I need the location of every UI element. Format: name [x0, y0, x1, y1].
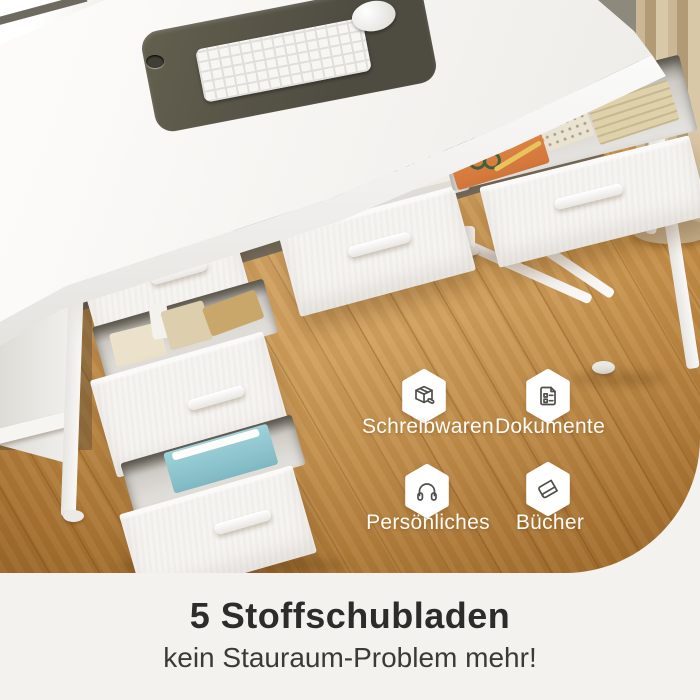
cable-grommet — [146, 55, 164, 68]
envelope — [202, 289, 265, 336]
product-image: Schreibwaren Dokumente Persönliches — [0, 0, 700, 700]
badge-buecher — [524, 462, 572, 516]
badge-label: Dokumente — [495, 415, 605, 439]
badge-label: Bücher — [516, 511, 584, 535]
drawer-handle — [214, 509, 273, 536]
photo-scene: Schreibwaren Dokumente Persönliches — [0, 0, 700, 573]
tower-leg-foot — [63, 510, 84, 522]
caption-band: 5 Stoffschubladen kein Stauraum-Problem … — [0, 573, 700, 700]
drawer-handle — [553, 183, 624, 211]
badge-persoenliches — [403, 464, 451, 518]
shadow-right-foot — [572, 372, 664, 386]
badge-label: Persönliches — [366, 511, 490, 535]
headphones-icon — [414, 478, 440, 504]
package-box-icon — [411, 383, 437, 409]
drawer-handle — [346, 231, 411, 258]
keyboard — [195, 17, 372, 102]
document-icon — [535, 383, 561, 409]
drawer-handle — [187, 385, 246, 412]
badge-label: Schreibwaren — [362, 415, 494, 439]
book-icon — [535, 476, 561, 502]
caption-subtitle: kein Stauraum-Problem mehr! — [0, 642, 700, 674]
caption-title: 5 Stoffschubladen — [0, 595, 700, 637]
